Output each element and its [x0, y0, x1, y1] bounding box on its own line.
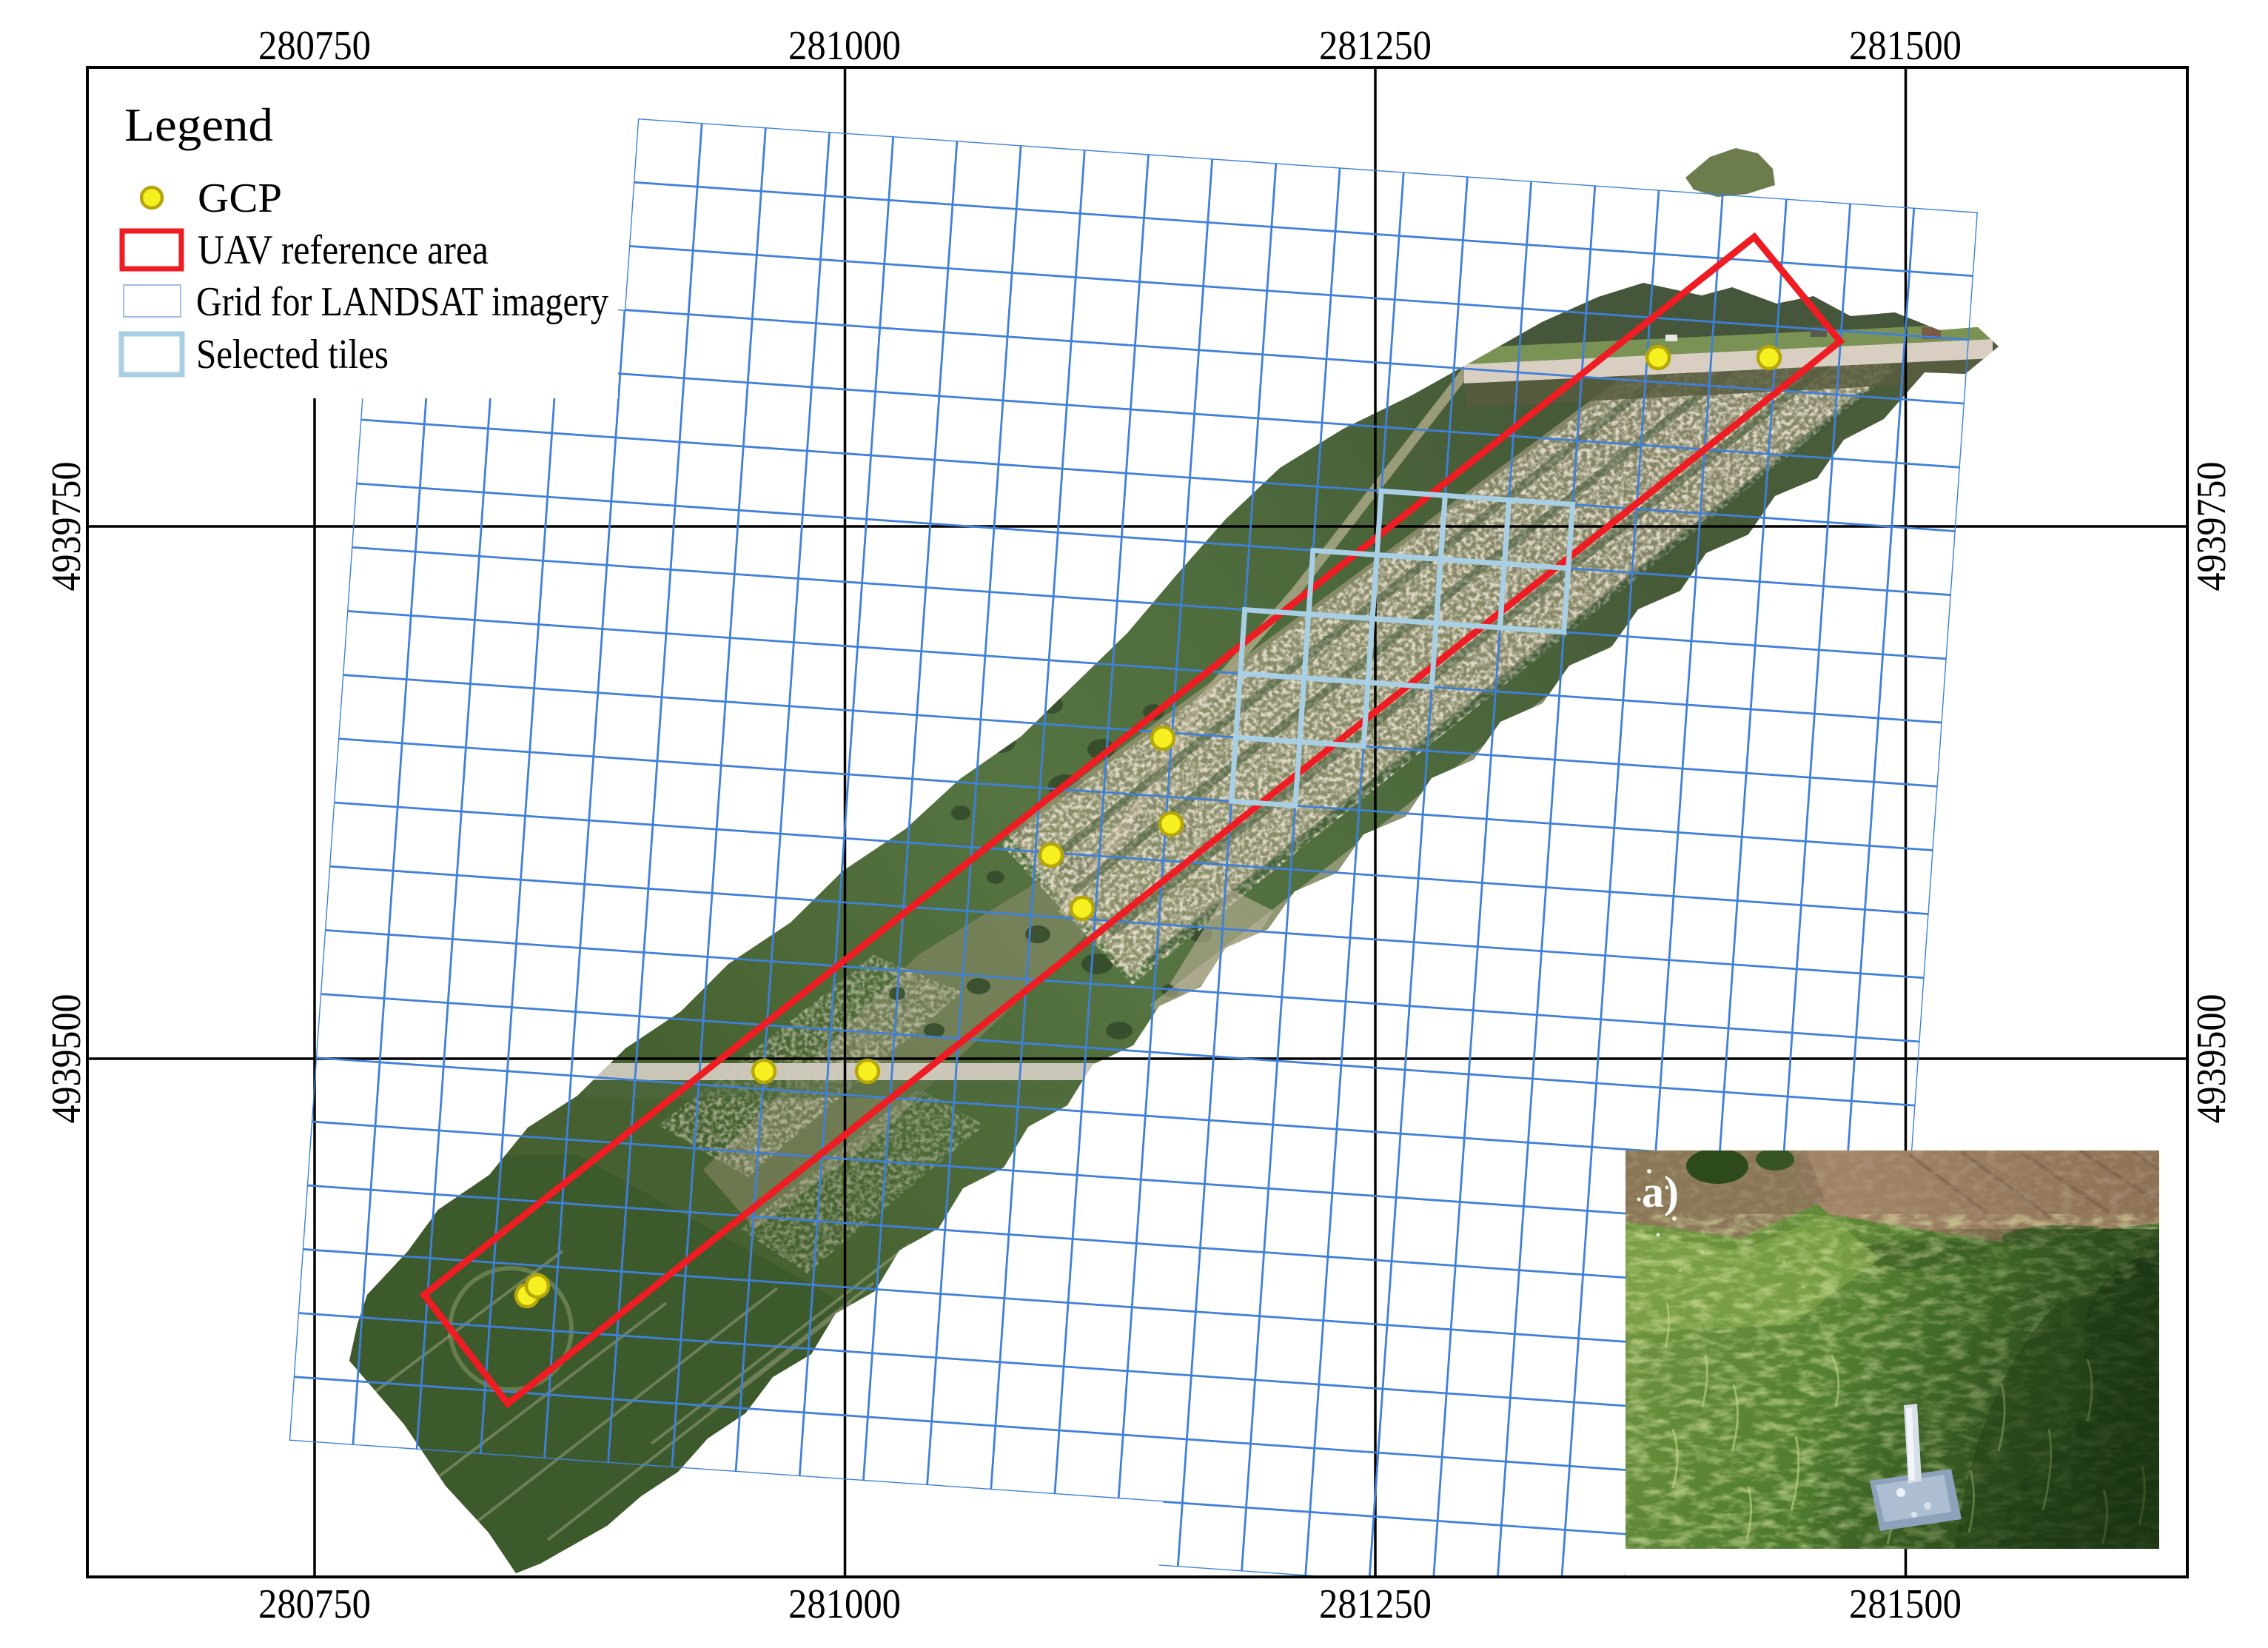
- svg-text:281250: 281250: [1319, 1581, 1432, 1627]
- svg-text:4939750: 4939750: [44, 462, 90, 592]
- svg-text:Selected tiles: Selected tiles: [196, 332, 389, 378]
- svg-text:280750: 280750: [258, 1581, 371, 1627]
- svg-text:GCP: GCP: [198, 175, 282, 221]
- svg-text:4939500: 4939500: [2189, 994, 2235, 1124]
- svg-text:Legend: Legend: [124, 98, 273, 151]
- svg-text:281000: 281000: [788, 1581, 901, 1627]
- svg-text:4939500: 4939500: [44, 994, 90, 1124]
- svg-text:4939750: 4939750: [2189, 462, 2235, 592]
- svg-text:UAV reference area: UAV reference area: [198, 227, 489, 273]
- svg-text:281000: 281000: [788, 23, 901, 69]
- svg-text:a): a): [1642, 1168, 1679, 1216]
- svg-text:280750: 280750: [258, 23, 371, 69]
- svg-text:281250: 281250: [1319, 23, 1432, 69]
- svg-text:Grid for LANDSAT imagery: Grid for LANDSAT imagery: [196, 279, 608, 325]
- svg-text:281500: 281500: [1849, 1581, 1962, 1627]
- svg-text:281500: 281500: [1849, 23, 1962, 69]
